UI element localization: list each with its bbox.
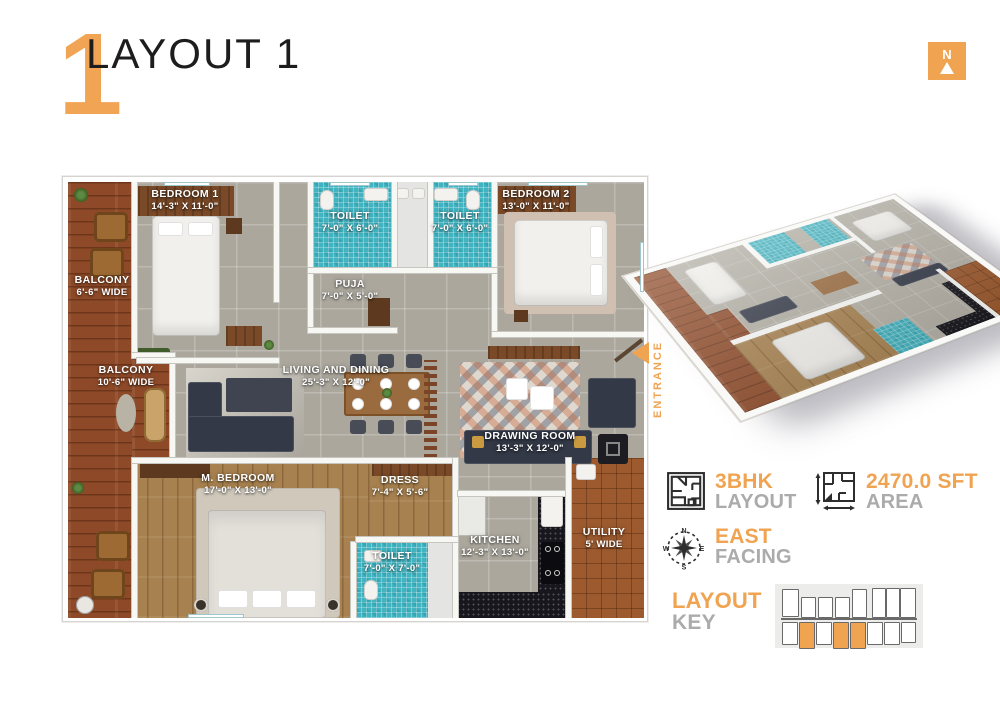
- isometric-3d-view: [648, 134, 993, 444]
- burner: [554, 570, 560, 576]
- svg-text:S: S: [682, 565, 687, 571]
- armchair: [588, 378, 636, 428]
- room-label-toilet3: TOILET 7'-0" X 7'-0": [364, 550, 421, 575]
- badge-area-label: AREA: [866, 492, 978, 514]
- key-unit: [852, 589, 867, 618]
- svg-text:E: E: [700, 546, 705, 553]
- plate: [352, 398, 364, 410]
- floor-art-frame: [530, 386, 554, 410]
- key-unit: [816, 622, 832, 645]
- wall: [308, 268, 497, 273]
- wall: [458, 491, 566, 496]
- badge-area: 2470.0 SFT AREA: [813, 471, 978, 514]
- room-label-living: LIVING AND DINING 25'-3" X 12'-0": [283, 364, 390, 389]
- north-indicator: N: [928, 42, 966, 80]
- utility-sink: [576, 464, 596, 480]
- wall: [308, 328, 397, 333]
- bench: [144, 388, 166, 442]
- key-unit: [835, 597, 850, 618]
- badge-bhk: 3BHK LAYOUT: [666, 471, 797, 514]
- key-corridor-line: [781, 618, 917, 620]
- burner: [554, 546, 560, 552]
- key-unit: [867, 622, 883, 645]
- dining-chair: [406, 354, 422, 368]
- plate: [408, 378, 420, 390]
- floor-art-frame: [506, 378, 528, 400]
- key-unit: [884, 622, 900, 645]
- lounge-chair: [94, 212, 128, 242]
- room-label-puja: PUJA 7'-0" X 5'-0": [322, 278, 379, 303]
- key-unit: [818, 597, 833, 618]
- wall: [356, 537, 458, 542]
- pillow: [286, 590, 316, 608]
- pillow: [218, 590, 248, 608]
- badge-area-text: 2470.0 SFT AREA: [866, 471, 978, 514]
- centerpiece-plant: [382, 388, 392, 398]
- layout-key-title-line1: LAYOUT: [672, 590, 762, 612]
- key-unit: [900, 588, 916, 618]
- dining-chair: [350, 420, 366, 434]
- plate: [380, 398, 392, 410]
- entrance-label: ENTRANCE: [652, 318, 664, 418]
- key-unit: [833, 622, 849, 649]
- wall: [137, 358, 279, 363]
- wall: [132, 458, 137, 618]
- wall: [170, 358, 175, 458]
- speaker-table: [598, 434, 628, 464]
- room-label-toilet2: TOILET 7'-0" X 6'-0": [432, 210, 489, 235]
- round-table: [76, 596, 94, 614]
- room-label-bedroom2: BEDROOM 2 13'-0" X 11'-0": [502, 188, 569, 213]
- badge-area-value: 2470.0 SFT: [866, 471, 978, 492]
- bedside-table: [514, 310, 528, 322]
- burner: [545, 570, 551, 576]
- burner: [545, 546, 551, 552]
- plant: [264, 340, 274, 350]
- bedside-lamp: [326, 598, 340, 612]
- accent-pillow: [472, 436, 484, 448]
- toilet3-wc: [364, 580, 378, 600]
- bedside-table: [226, 218, 242, 234]
- window: [330, 182, 370, 186]
- room-label-utility: UTILITY 5' WIDE: [583, 526, 625, 551]
- plate: [408, 398, 420, 410]
- compass-icon: N E S W: [662, 526, 706, 570]
- window: [448, 182, 478, 186]
- page-title: LAYOUT 1: [86, 30, 301, 78]
- wall: [308, 182, 313, 328]
- refrigerator: [458, 496, 486, 536]
- svg-text:W: W: [663, 546, 670, 553]
- room-label-master-bedroom: M. BEDROOM 17'-0" X 13'-0": [201, 472, 274, 497]
- kitchen-counter-bottom: [456, 592, 566, 618]
- toilet1-wc: [320, 190, 334, 210]
- badge-bhk-value: 3BHK: [715, 471, 797, 492]
- plant: [72, 482, 84, 494]
- badge-facing-value: EAST: [715, 526, 792, 547]
- area-icon: [813, 471, 857, 511]
- room-label-balcony-top: BALCONY 6'-6" WIDE: [75, 274, 130, 299]
- toilet2-wc: [466, 190, 480, 210]
- floorplan-icon: [666, 471, 706, 511]
- wash-basin: [396, 188, 409, 199]
- kitchen-sink: [541, 495, 563, 527]
- layout-key-title-line2: KEY: [672, 612, 762, 635]
- key-unit: [801, 597, 816, 618]
- window: [164, 182, 210, 186]
- key-unit: [872, 588, 886, 618]
- north-letter: N: [942, 48, 951, 61]
- master-wardrobe: [140, 464, 210, 478]
- dining-chair: [406, 420, 422, 434]
- room-label-bedroom1: BEDROOM 1 14'-3" X 11'-0": [151, 188, 218, 213]
- wall: [274, 182, 279, 302]
- window: [188, 614, 244, 618]
- iso-lighting-overlay: [634, 199, 1000, 413]
- badge-facing-text: EAST FACING: [715, 526, 792, 569]
- pillow: [188, 222, 213, 236]
- room-label-balcony-bottom: BALCONY 10'-6" WIDE: [98, 364, 155, 389]
- lounge-chair: [91, 569, 125, 599]
- pillow: [158, 222, 183, 236]
- key-unit: [886, 588, 900, 618]
- accent-pillow: [574, 436, 586, 448]
- floor-plan-canvas: BEDROOM 1 14'-3" X 11'-0" TOILET 7'-0" X…: [68, 182, 644, 618]
- room-label-dress: DRESS 7'-4" X 5'-6": [372, 474, 429, 499]
- isometric-floor-plan: [624, 194, 1000, 421]
- floor-plan-2d: BEDROOM 1 14'-3" X 11'-0" TOILET 7'-0" X…: [62, 176, 648, 622]
- wall: [392, 182, 397, 268]
- badge-facing-label: FACING: [715, 547, 792, 569]
- bedroom1-dresser: [226, 326, 262, 346]
- key-unit: [850, 622, 866, 649]
- svg-text:N: N: [681, 528, 686, 535]
- toilet2-sink: [434, 188, 458, 201]
- key-unit: [799, 622, 815, 649]
- key-unit: [782, 589, 799, 617]
- plant: [74, 188, 88, 202]
- wash-basin: [412, 188, 425, 199]
- pillow: [252, 590, 282, 608]
- living-sofa: [188, 416, 294, 452]
- key-unit: [782, 622, 798, 645]
- brochure-page: 1 LAYOUT 1 N: [0, 0, 1000, 707]
- key-unit: [901, 622, 916, 643]
- oval-rug: [116, 394, 136, 432]
- bedside-lamp: [194, 598, 208, 612]
- badge-bhk-text: 3BHK LAYOUT: [715, 471, 797, 514]
- wall: [566, 458, 571, 618]
- toilet1-sink: [364, 188, 388, 201]
- room-label-drawing: DRAWING ROOM 13'-3" X 12'-0": [484, 430, 575, 455]
- layout-key-title: LAYOUT KEY: [672, 590, 762, 635]
- wall: [351, 542, 356, 618]
- room-label-toilet1: TOILET 7'-0" X 6'-0": [322, 210, 379, 235]
- slat-partition: [424, 360, 437, 458]
- pillow: [590, 226, 603, 258]
- wall: [492, 182, 497, 332]
- wall: [132, 182, 137, 358]
- north-arrow-icon: [940, 62, 954, 74]
- window: [640, 242, 644, 292]
- lounge-chair: [96, 531, 130, 561]
- wall: [132, 458, 458, 463]
- badge-bhk-label: LAYOUT: [715, 492, 797, 514]
- dining-chair: [378, 420, 394, 434]
- wall: [492, 332, 644, 337]
- window: [528, 182, 588, 186]
- pillow: [590, 264, 603, 296]
- room-label-kitchen: KITCHEN 12'-3" X 13'-0": [461, 534, 529, 559]
- layout-key-diagram: [775, 584, 923, 648]
- badge-facing: N E S W EAST FACING: [662, 526, 792, 570]
- console-table: [488, 346, 580, 359]
